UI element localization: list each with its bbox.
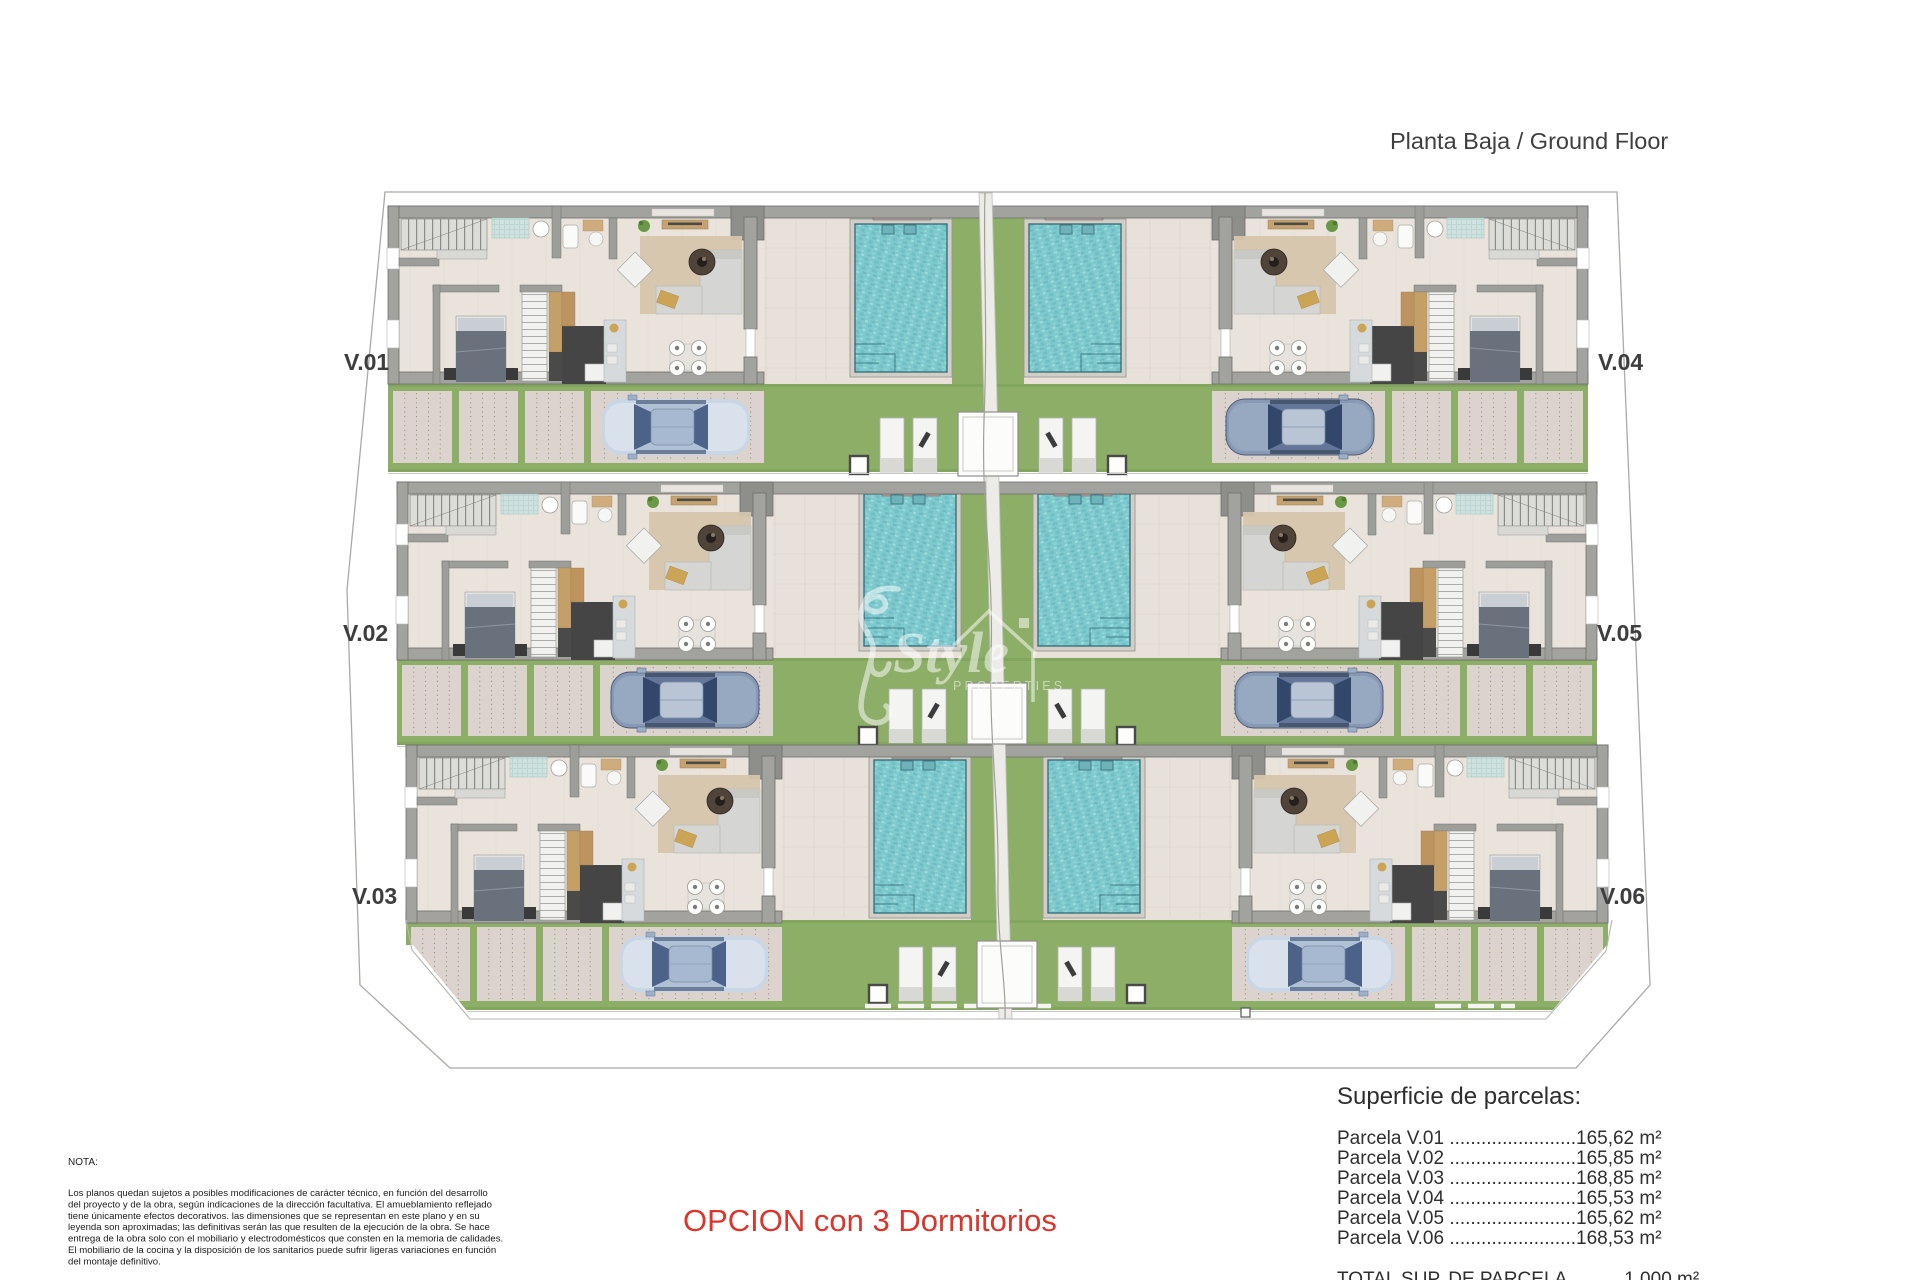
svg-text:V.04: V.04 [1598, 349, 1643, 375]
svg-text:V.01: V.01 [344, 349, 389, 375]
svg-text:tiene únicamente efectos decor: tiene únicamente efectos decorativos. la… [68, 1211, 480, 1222]
svg-text:Superficie de parcelas:: Superficie de parcelas: [1337, 1083, 1581, 1110]
svg-text:OPCION con 3 Dormitorios: OPCION con 3 Dormitorios [683, 1203, 1057, 1238]
svg-text:V.06: V.06 [1600, 883, 1645, 909]
svg-text:Parcela V.06 .................: Parcela V.06 ........................168… [1337, 1228, 1662, 1249]
svg-text:del proyecto y de la obra, seg: del proyecto y de la obra, según indicac… [68, 1199, 492, 1210]
svg-text:Los planos quedan sujetos a po: Los planos quedan sujetos a posibles mod… [68, 1188, 488, 1199]
svg-text:Style: Style [893, 620, 1009, 685]
svg-text:PROPERTIES: PROPERTIES [953, 679, 1065, 693]
svg-text:Parcela V.02 .................: Parcela V.02 ........................165… [1337, 1148, 1662, 1169]
svg-text:entrega de la obra solo con el: entrega de la obra solo con el mobiliari… [68, 1234, 503, 1245]
svg-text:V.02: V.02 [343, 620, 388, 646]
svg-text:TOTAL SUP. DE PARCELA ........: TOTAL SUP. DE PARCELA ..........1.000 m² [1337, 1269, 1699, 1280]
svg-text:Planta Baja / Ground Floor: Planta Baja / Ground Floor [1390, 128, 1668, 154]
svg-text:leyenda son aproximadas; las d: leyenda son aproximadas; las definitivas… [68, 1222, 490, 1233]
svg-text:V.03: V.03 [352, 883, 397, 909]
svg-text:Parcela V.01 .................: Parcela V.01 ........................165… [1337, 1128, 1662, 1149]
svg-text:Parcela V.04 .................: Parcela V.04 ........................165… [1337, 1188, 1662, 1209]
svg-text:Parcela V.03 .................: Parcela V.03 ........................168… [1337, 1168, 1662, 1189]
svg-text:El mobiliario de la cocina y l: El mobiliario de la cocina y la disposic… [68, 1245, 496, 1256]
svg-text:del montaje definitivo.: del montaje definitivo. [68, 1256, 161, 1267]
svg-text:NOTA:: NOTA: [68, 1157, 98, 1168]
svg-text:V.05: V.05 [1597, 620, 1642, 646]
svg-text:Parcela V.05 .................: Parcela V.05 ........................165… [1337, 1208, 1662, 1229]
